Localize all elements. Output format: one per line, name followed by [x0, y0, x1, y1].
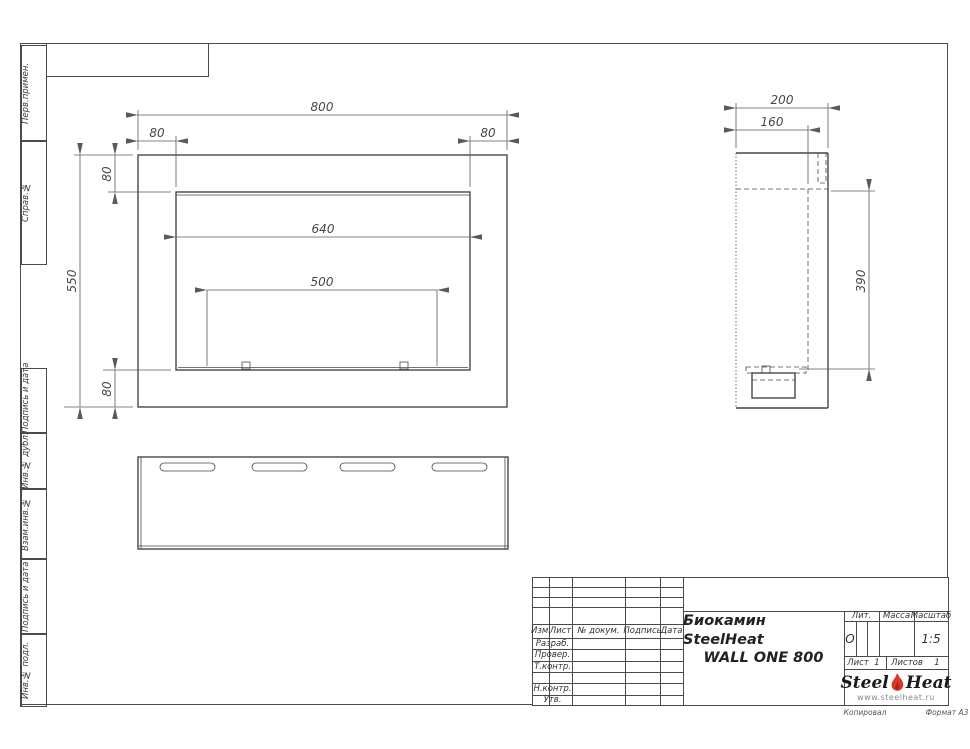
stamp-inv-podl: Инв.№ подл.	[20, 633, 47, 707]
sheet-value: 1	[870, 656, 884, 669]
document-title: Биокамин SteelHeat WALL ONE 800	[683, 614, 844, 666]
title-block: Изм. Лист № докум. Подпись Дата Разраб. …	[532, 577, 949, 706]
row-tkontr: Т.контр.	[533, 661, 572, 672]
logo-url: www.steelheat.ru	[857, 693, 935, 702]
col-header-dokum: № докум.	[572, 624, 625, 638]
logo-text-steel: Steel	[841, 675, 889, 692]
lit-value: О	[844, 621, 856, 656]
flame-icon	[890, 673, 905, 692]
stamp-label: Подпись и дата	[21, 559, 31, 634]
stamp-vzam-inv: Взам.инв.№	[20, 488, 47, 560]
scale-label: Масштаб	[914, 611, 948, 621]
sheet-label: Лист	[844, 656, 872, 669]
stamp-perv-primen: Перв.примен.	[20, 45, 47, 142]
stamp-inv-dubl: Инв.№ дубл.	[20, 432, 47, 490]
stamp-label: Инв.№ подл.	[21, 634, 31, 706]
logo-text-heat: Heat	[906, 675, 952, 692]
col-header-data: Дата	[660, 624, 683, 638]
document-title-line2: WALL ONE 800	[704, 649, 824, 668]
stamp-podpis-data-2: Подпись и дата	[20, 558, 47, 635]
mass-value	[879, 621, 914, 656]
lit-label: Лит.	[844, 611, 879, 621]
row-razrab: Разраб.	[533, 638, 572, 649]
company-logo: Steel Heat www.steelheat.ru	[844, 669, 948, 705]
sheets-label: Листов	[886, 656, 928, 669]
document-title-line1: Биокамин SteelHeat	[683, 612, 844, 650]
stamp-label: Справ.№	[21, 141, 31, 264]
mass-label: Масса	[879, 611, 914, 621]
row-utv: Утв.	[533, 695, 572, 705]
row-prover: Провер.	[533, 649, 572, 661]
stamp-label: Инв.№ дубл.	[21, 433, 31, 489]
stamp-label: Взам.инв.№	[21, 489, 31, 559]
scale-value: 1:5	[914, 621, 948, 656]
footer-copied: Копировал	[828, 707, 902, 717]
stamp-podpis-data-1: Подпись и дата	[20, 368, 47, 434]
drawing-sheet: 800 80 80 550 80 80 640 500	[0, 0, 970, 749]
top-left-designation-box	[46, 43, 209, 77]
col-header-list: Лист	[549, 624, 572, 638]
col-header-izm: Изм.	[533, 624, 549, 638]
col-header-podpis: Подпись	[625, 624, 660, 638]
stamp-label: Подпись и дата	[21, 369, 31, 433]
stamp-sprav-no: Справ.№	[20, 140, 47, 265]
stamp-label: Перв.примен.	[21, 46, 31, 141]
row-nkontr: Н.контр.	[533, 683, 572, 695]
footer-format: Формат А3	[910, 707, 970, 717]
sheets-value: 1	[928, 656, 946, 669]
row-empty	[533, 672, 572, 683]
